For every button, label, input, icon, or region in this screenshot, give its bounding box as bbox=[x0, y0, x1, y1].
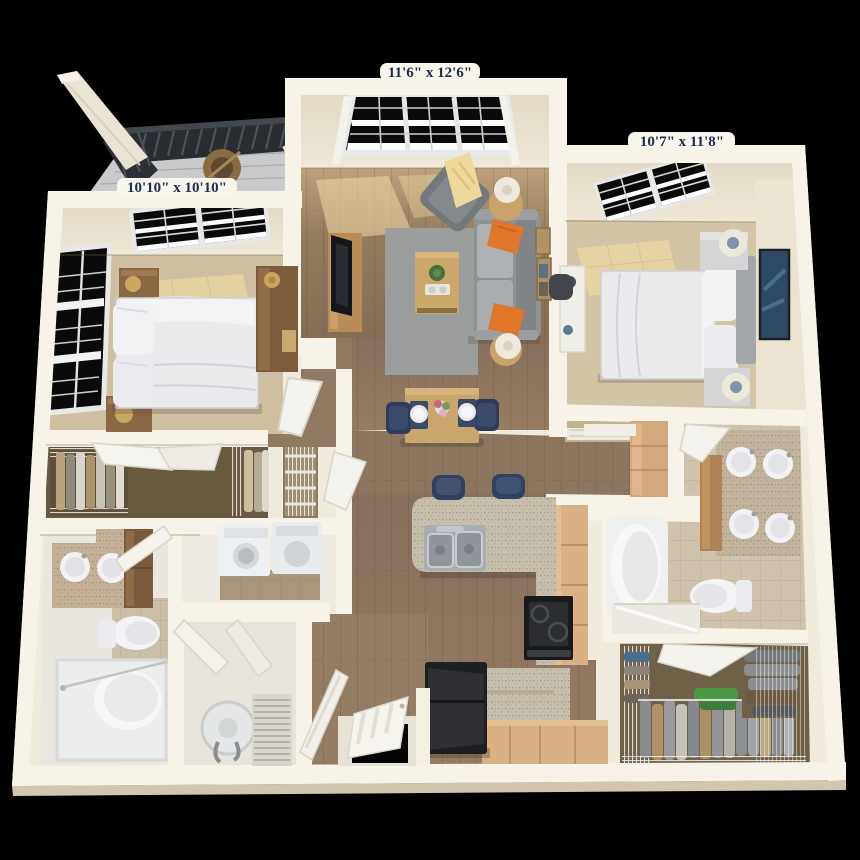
svg-text:11'6" x 12'6": 11'6" x 12'6" bbox=[388, 65, 472, 81]
svg-text:10'7" x 11'8": 10'7" x 11'8" bbox=[640, 134, 724, 150]
svg-text:10'10" x 10'10": 10'10" x 10'10" bbox=[127, 180, 227, 196]
